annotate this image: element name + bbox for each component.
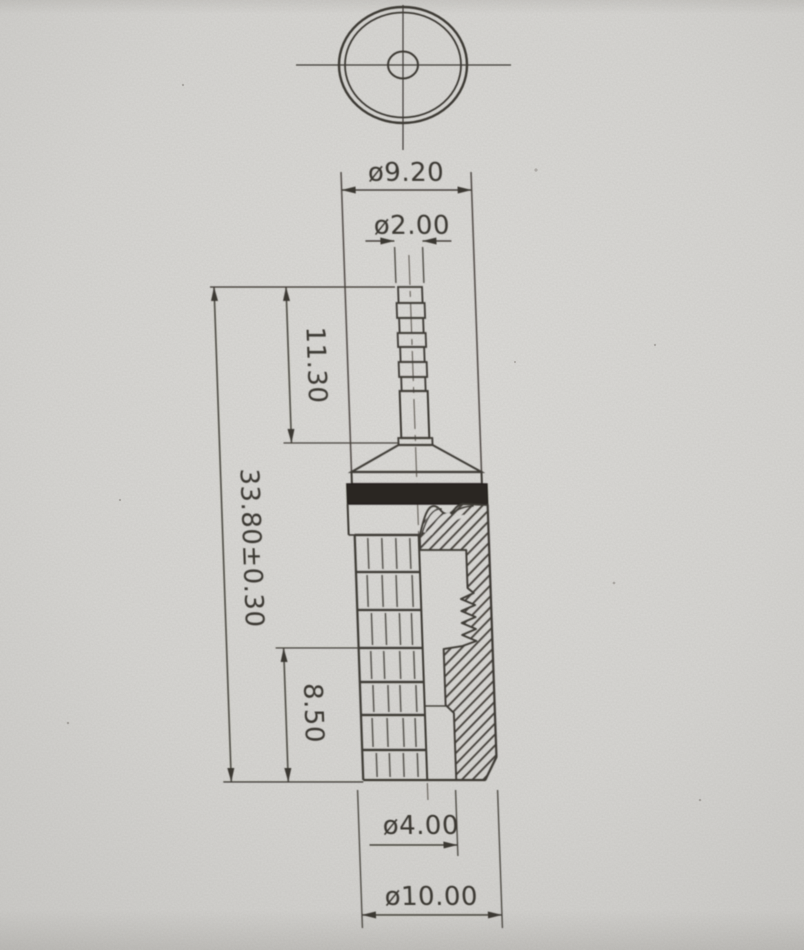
dim-label-bore: ø4.00 — [382, 811, 459, 841]
technical-drawing-photo: ø9.20 ø2.00 33.80±0.30 — [0, 0, 804, 950]
collar-left-edge — [348, 504, 349, 535]
dim-label-tip-length: 11.30 — [299, 327, 332, 404]
insulator-black-band — [347, 484, 488, 504]
dim-label-body: ø10.00 — [384, 882, 478, 912]
technical-drawing-canvas: ø9.20 ø2.00 33.80±0.30 — [0, 0, 804, 950]
dim-label-tip: ø2.00 — [373, 211, 450, 241]
paper-background — [0, 0, 804, 950]
dim-label-overall: 33.80±0.30 — [233, 468, 269, 627]
dim-label-lower: 8.50 — [297, 683, 329, 743]
paper-bottom-shadow — [0, 910, 804, 950]
paper-grain — [0, 0, 804, 950]
dim-label-outer-top: ø9.20 — [367, 158, 444, 188]
